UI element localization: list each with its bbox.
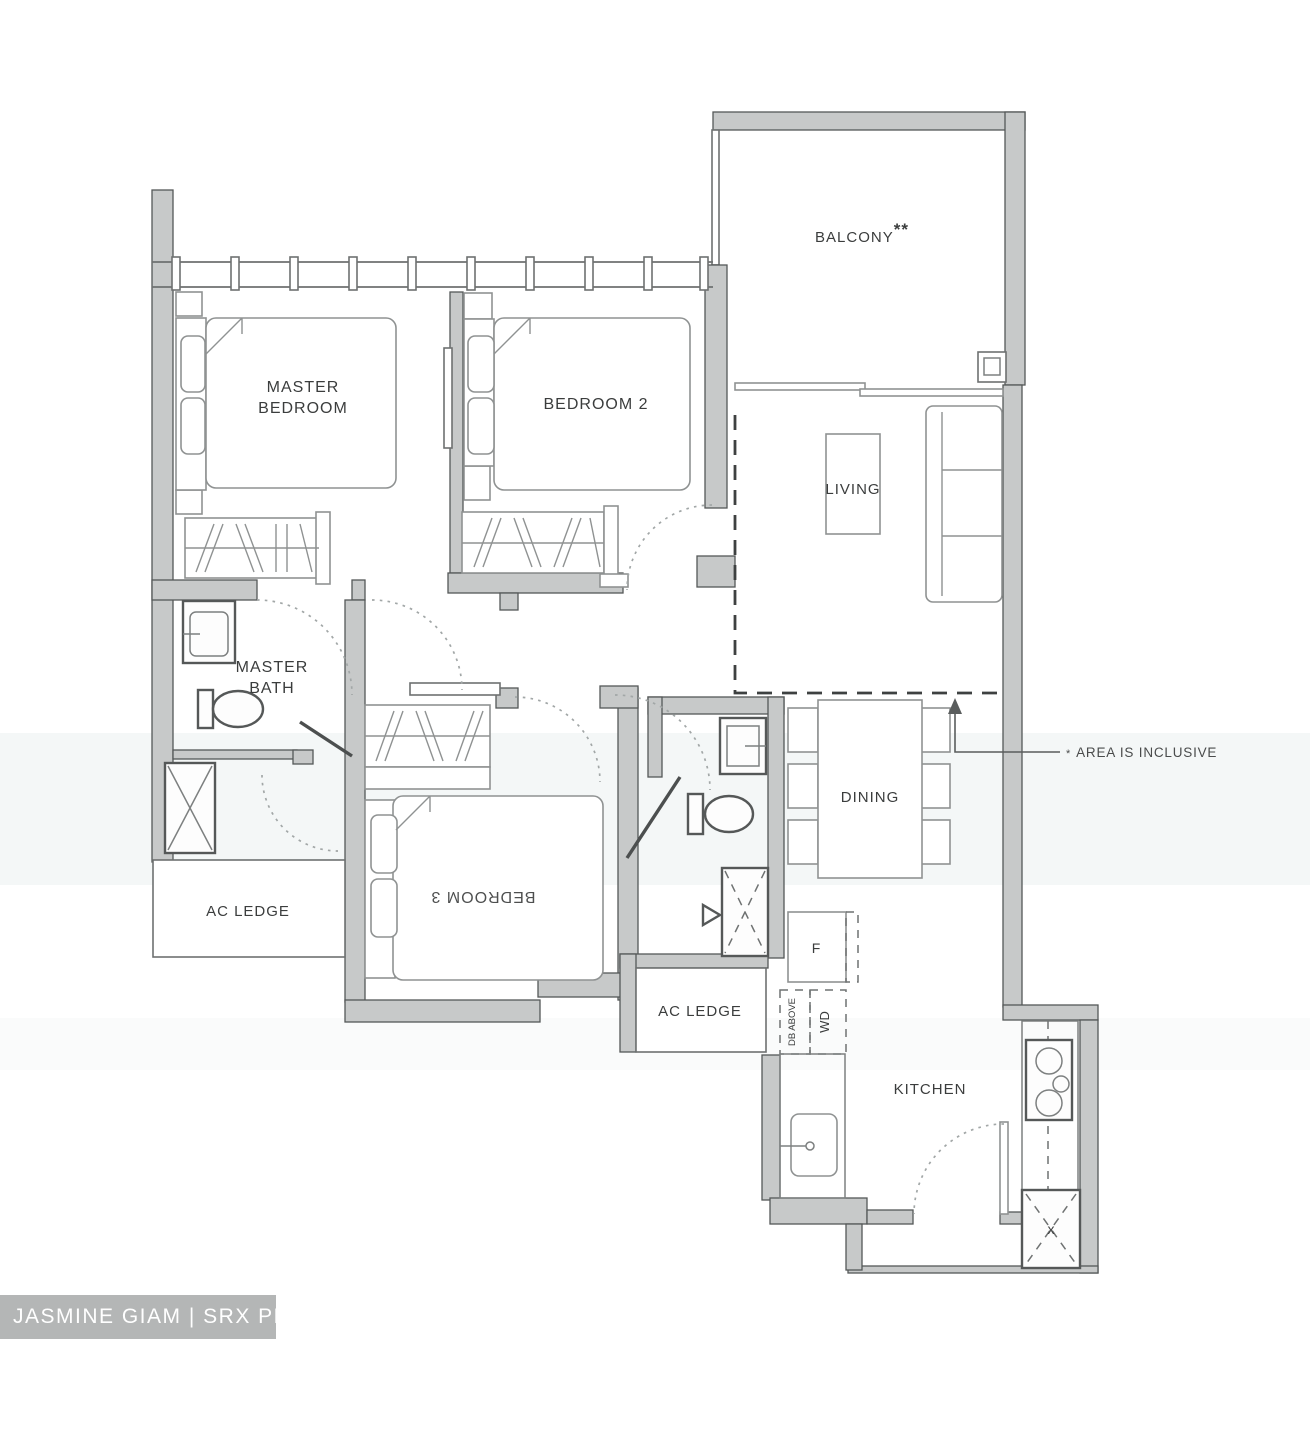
- wardrobe-bedroom2: [462, 506, 618, 584]
- label-db-above: DB ABOVE: [787, 998, 798, 1046]
- floor-plan: MASTER BEDROOM BEDROOM 2 BALCONY**: [0, 0, 1310, 1440]
- window-band: [152, 257, 713, 290]
- svg-text:x: x: [1048, 1221, 1055, 1237]
- label-master-bedroom: MASTER: [267, 379, 340, 396]
- label-ac-ledge-mid: AC LEDGE: [658, 1003, 742, 1020]
- room-dining: DINING: [788, 700, 950, 878]
- label-balcony: BALCONY**: [815, 220, 909, 246]
- label-dining: DINING: [841, 789, 900, 806]
- label-ac-ledge-left: AC LEDGE: [206, 903, 290, 920]
- arrow-up-icon: [948, 698, 962, 714]
- entrance-door-leaf: [1000, 1122, 1008, 1214]
- dining-chair: [920, 708, 950, 752]
- dining-chair: [788, 764, 818, 808]
- label-kitchen: KITCHEN: [894, 1081, 967, 1098]
- label-bedroom3: BEDROOM 3: [430, 888, 535, 905]
- toilet: [688, 794, 753, 834]
- entrance-door-arc: [914, 1124, 1004, 1214]
- watermark-bar: JASMINE GIAM | SRX PROPERTY: [0, 1295, 276, 1339]
- balcony-sliding-door: [735, 352, 1006, 396]
- label-washer-dryer: WD: [817, 1011, 832, 1033]
- dining-chair: [920, 820, 950, 864]
- sofa: [926, 406, 1002, 602]
- dining-chair: [920, 764, 950, 808]
- label-area-note: *AREA IS INCLUSIVE: [1066, 745, 1217, 760]
- floor-trap: x: [1022, 1190, 1080, 1268]
- ac-ledge-mid: AC LEDGE: [636, 968, 766, 1052]
- ac-ledge-left: AC LEDGE: [153, 860, 345, 957]
- room-bedroom2: BEDROOM 2: [462, 293, 690, 584]
- label-living: LIVING: [825, 481, 880, 498]
- dining-chair: [788, 708, 818, 752]
- label-fridge: F: [812, 940, 821, 956]
- wardrobe-master: [185, 512, 330, 584]
- bath2-sink: [720, 718, 766, 774]
- shelf: [410, 683, 500, 695]
- dining-chair: [788, 820, 818, 864]
- shower-head-icon: [703, 905, 720, 925]
- watermark-text: JASMINE GIAM | SRX PROPERTY: [0, 1305, 385, 1329]
- label-master-bath: MASTER: [236, 659, 309, 676]
- floorplan-page: MASTER BEDROOM BEDROOM 2 BALCONY**: [0, 0, 1310, 1440]
- door-leaf: [600, 574, 628, 587]
- wardrobe-bedroom3: [365, 705, 490, 789]
- shower: [722, 868, 768, 956]
- shower: [165, 763, 215, 853]
- label-master-bath2: BATH: [249, 680, 294, 697]
- label-master-bedroom2: BEDROOM: [258, 400, 348, 417]
- label-bedroom2: BEDROOM 2: [543, 396, 648, 413]
- room-master-bedroom: MASTER BEDROOM: [176, 292, 452, 584]
- room-living: LIVING: [825, 406, 1002, 602]
- cooktop: [1026, 1040, 1072, 1120]
- bath-sink: [183, 601, 235, 663]
